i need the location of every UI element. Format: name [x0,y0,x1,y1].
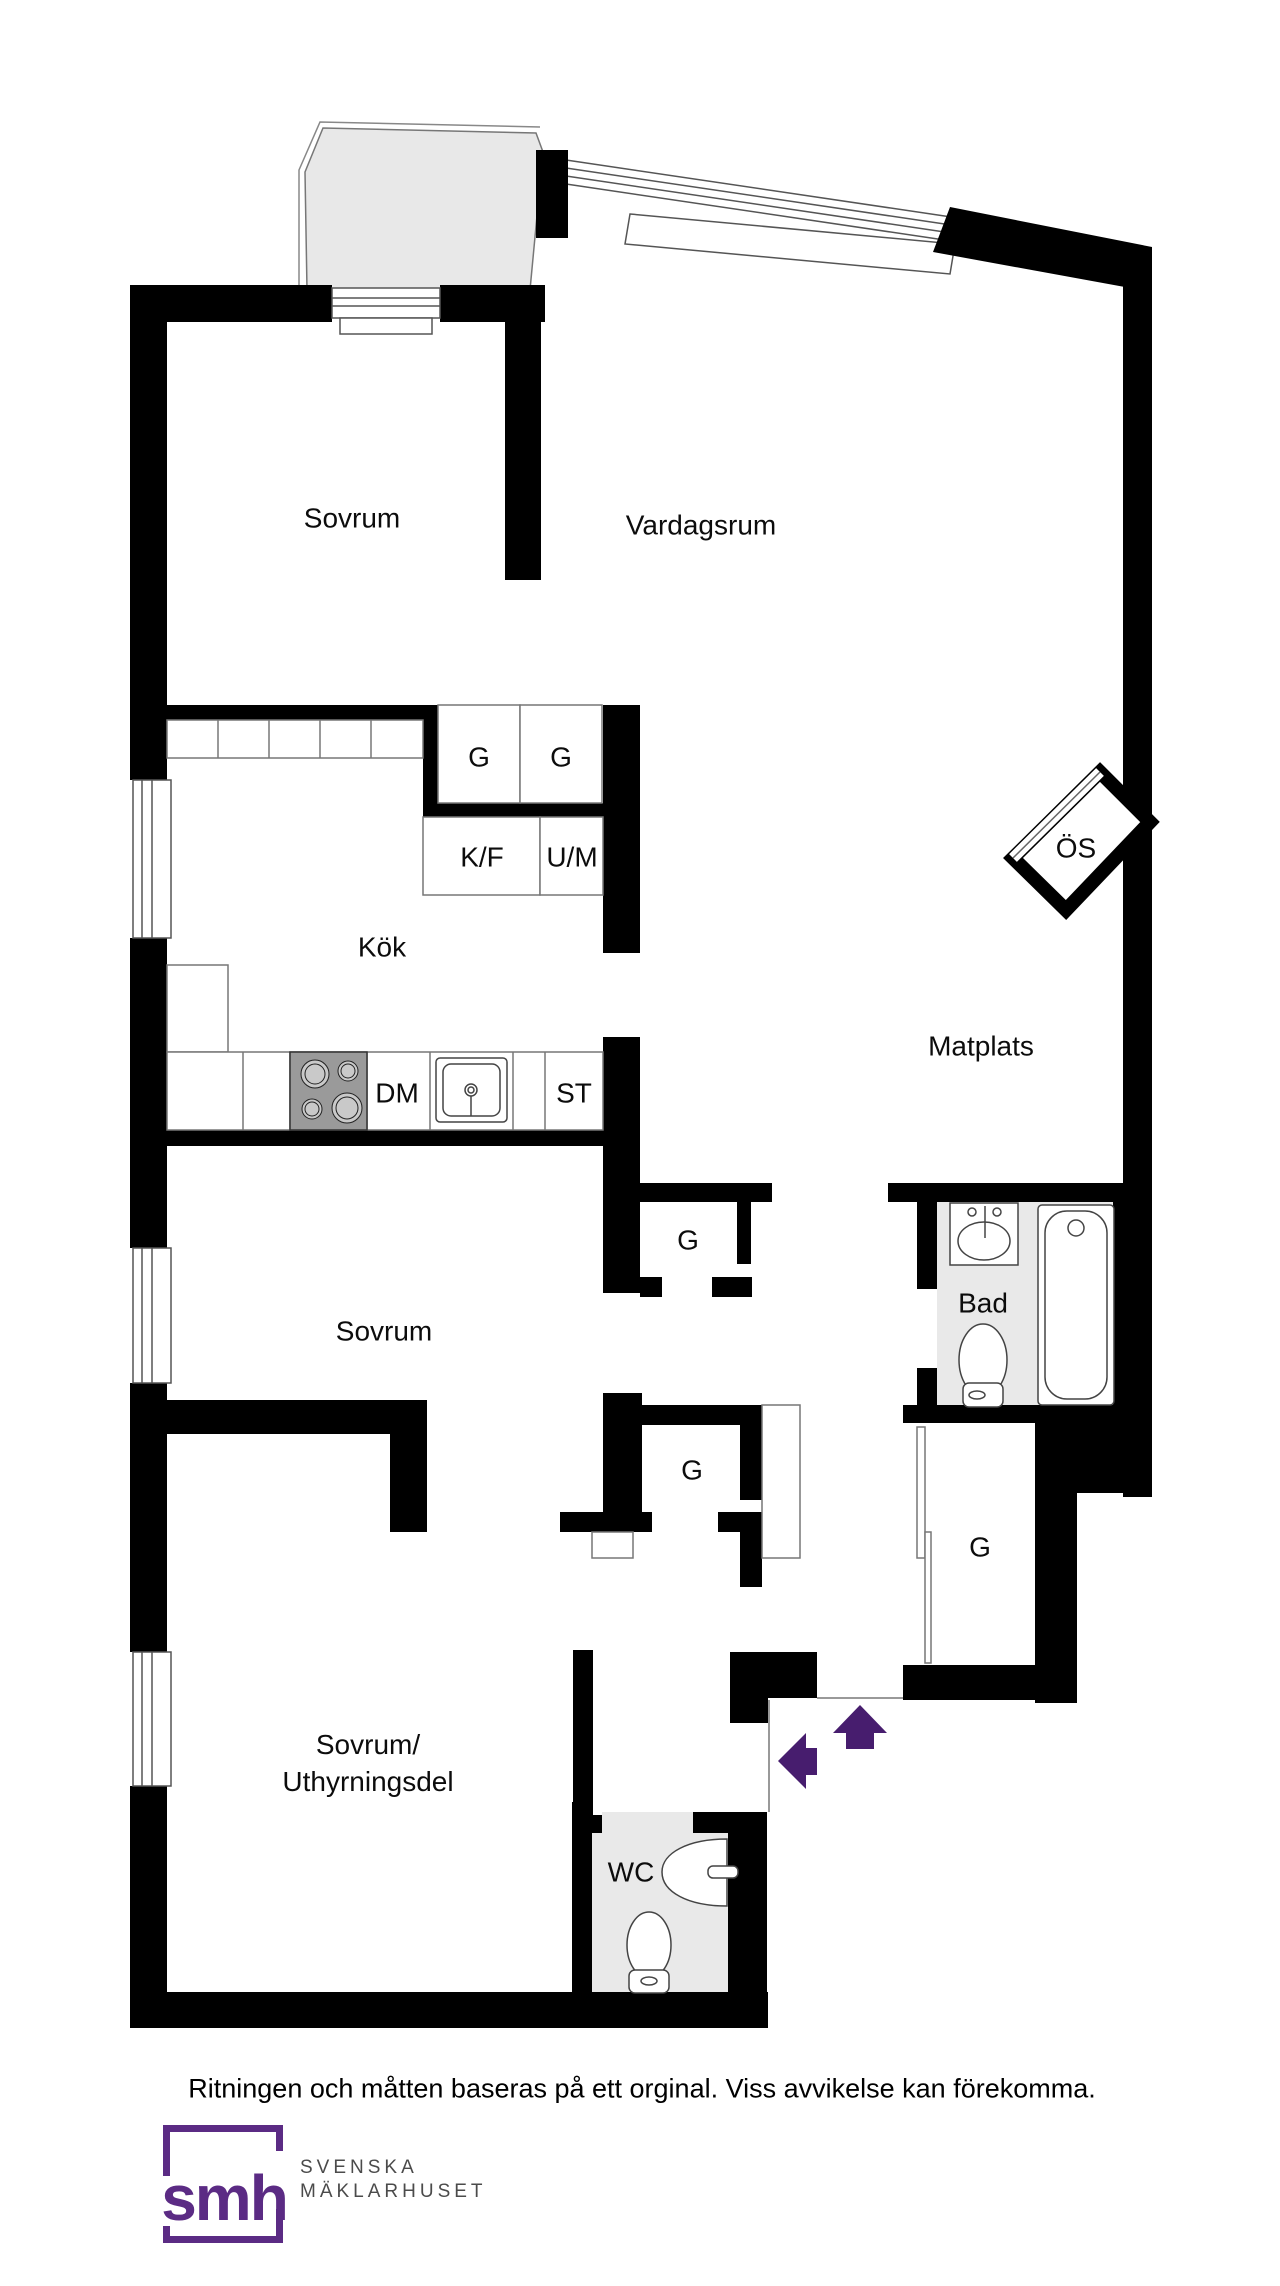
bathroom-sink-icon [950,1203,1018,1265]
entrance-arrows [778,1705,887,1789]
room-label-kok: Kök [358,929,406,966]
room-label-wc: WC [608,1854,655,1891]
closet-label-g4: G [681,1452,703,1489]
bay-window [566,160,958,274]
room-label-matplats: Matplats [928,1028,1034,1065]
room-label-sovrum3-line1: Sovrum/ [316,1729,420,1760]
room-label-bad: Bad [958,1285,1008,1322]
room-label-sovrum2: Sovrum [336,1313,432,1350]
entrance-arrow-up-icon [833,1705,887,1749]
room-label-sovrum3: Sovrum/Uthyrningsdel [282,1726,453,1800]
closet-door-line [925,1532,931,1663]
wc-toilet-icon [627,1912,671,1993]
room-label-vardagsrum: Vardagsrum [626,507,776,544]
entrance-arrow-left-icon [778,1733,817,1789]
logo-text-svenska: SVENSKA [300,2157,418,2179]
closet-label-g5: G [969,1529,991,1566]
left-window-bedroom2 [133,1248,171,1383]
closet-label-g1: G [468,739,490,776]
left-window-bedroom3 [133,1652,171,1786]
kitchen-cabinets [167,705,603,1130]
closet-label-g2: G [550,739,572,776]
stove-icon [290,1052,367,1130]
appliance-label-kf: K/F [460,839,504,876]
floor-plan: Sovrum Vardagsrum Kök Matplats Sovrum So… [0,0,1280,2286]
fridge-outline [167,965,228,1052]
toilet-icon [959,1324,1007,1407]
smh-logo-mark: smh [161,2161,287,2235]
closet-label-g3: G [677,1222,699,1259]
appliance-label-um: U/M [546,839,597,876]
balcony [299,122,543,290]
closet-doors [592,1405,931,1663]
disclaimer-text: Ritningen och måtten baseras på ett orgi… [188,2074,1095,2105]
room-label-os: ÖS [1056,830,1096,867]
closet-door-line [917,1427,925,1558]
wardrobe-door [762,1405,800,1558]
room-label-sovrum1: Sovrum [304,500,400,537]
appliance-label-st: ST [556,1075,592,1112]
floor-plan-drawing [0,0,1280,2286]
balcony-door-window [332,288,440,334]
wc-room [592,1812,738,1993]
room-label-sovrum3-line2: Uthyrningsdel [282,1766,453,1797]
appliance-label-dm: DM [375,1075,419,1112]
kitchen-sink-icon [436,1058,507,1122]
bathtub-icon [1038,1205,1114,1405]
left-window-kitchen [133,780,171,938]
logo-text-maklarhuset: MÄKLARHUSET [300,2181,487,2203]
door-leaf [592,1532,633,1558]
